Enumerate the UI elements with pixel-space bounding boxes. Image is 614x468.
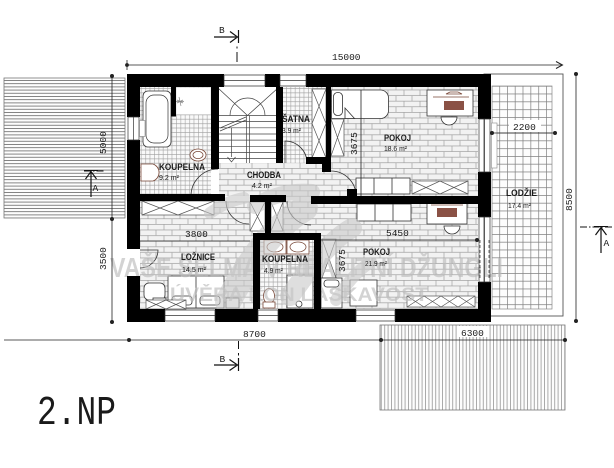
svg-text:17.4 m²: 17.4 m² (508, 201, 531, 210)
svg-text:KOUPELNA: KOUPELNA (262, 254, 308, 264)
svg-text:B: B (219, 25, 225, 36)
svg-text:4.2 m²: 4.2 m² (252, 181, 272, 190)
svg-text:8700: 8700 (243, 329, 266, 340)
svg-text:KOUPELNA: KOUPELNA (159, 162, 205, 172)
svg-text:3800: 3800 (185, 229, 208, 240)
svg-text:8500: 8500 (564, 188, 575, 211)
svg-text:POKOJ: POKOJ (363, 247, 390, 257)
svg-text:2200: 2200 (513, 122, 536, 133)
svg-text:2.NP: 2.NP (37, 391, 116, 437)
svg-text:3675: 3675 (349, 132, 360, 155)
svg-text:5450: 5450 (386, 228, 409, 239)
svg-text:3500: 3500 (98, 247, 109, 270)
svg-text:LOŽNICE: LOŽNICE (181, 251, 215, 262)
svg-text:9.2 m²: 9.2 m² (159, 173, 179, 182)
svg-text:18.6 m²: 18.6 m² (384, 144, 407, 153)
svg-text:5000: 5000 (98, 131, 109, 154)
svg-text:4.9 m²: 4.9 m² (264, 266, 283, 275)
svg-text:B: B (220, 354, 226, 365)
svg-text:15000: 15000 (332, 52, 361, 63)
svg-text:14.5 m²: 14.5 m² (182, 265, 206, 274)
svg-text:A: A (93, 183, 99, 194)
svg-text:CHODBA: CHODBA (247, 170, 281, 180)
svg-text:POKOJ: POKOJ (384, 133, 411, 143)
svg-text:3.9 m²: 3.9 m² (282, 126, 301, 135)
svg-text:LODŽIE: LODŽIE (506, 187, 537, 198)
svg-text:A: A (604, 238, 610, 249)
svg-text:ŠATNA: ŠATNA (282, 113, 310, 124)
svg-text:3675: 3675 (337, 249, 348, 272)
svg-text:6300: 6300 (461, 328, 484, 339)
svg-text:21.9 m²: 21.9 m² (365, 259, 387, 268)
